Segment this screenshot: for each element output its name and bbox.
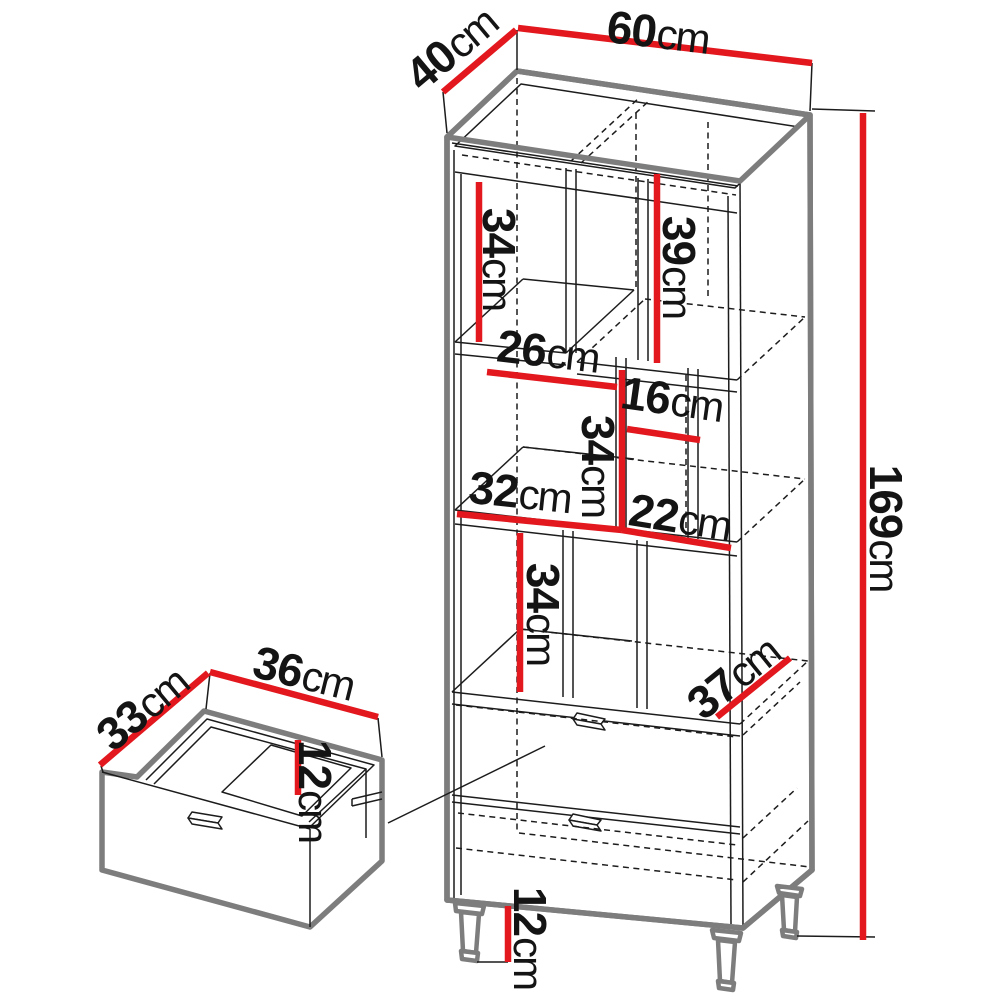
leg-back-right (777, 886, 802, 938)
dim-label-lower-height: 34cm (520, 563, 566, 665)
dim-label-leg-height: 12cm (507, 887, 553, 989)
dim-label-upper-right-height: 39cm (656, 216, 702, 318)
leg-front-right (712, 930, 741, 990)
furniture-dimension-diagram: 60cm 40cm 169cm 34cm 39cm 26cm 16cm 34cm… (0, 0, 1000, 1000)
dim-label-lower-left-width: 32cm (467, 464, 573, 520)
dim-label-drawer-height: 12cm (292, 740, 338, 842)
leg-front-left (455, 903, 484, 961)
dim-label-mid-height: 34cm (575, 415, 621, 517)
dim-label-upper-left-height: 34cm (476, 208, 522, 310)
dim-label-height-total: 169cm (863, 465, 909, 592)
